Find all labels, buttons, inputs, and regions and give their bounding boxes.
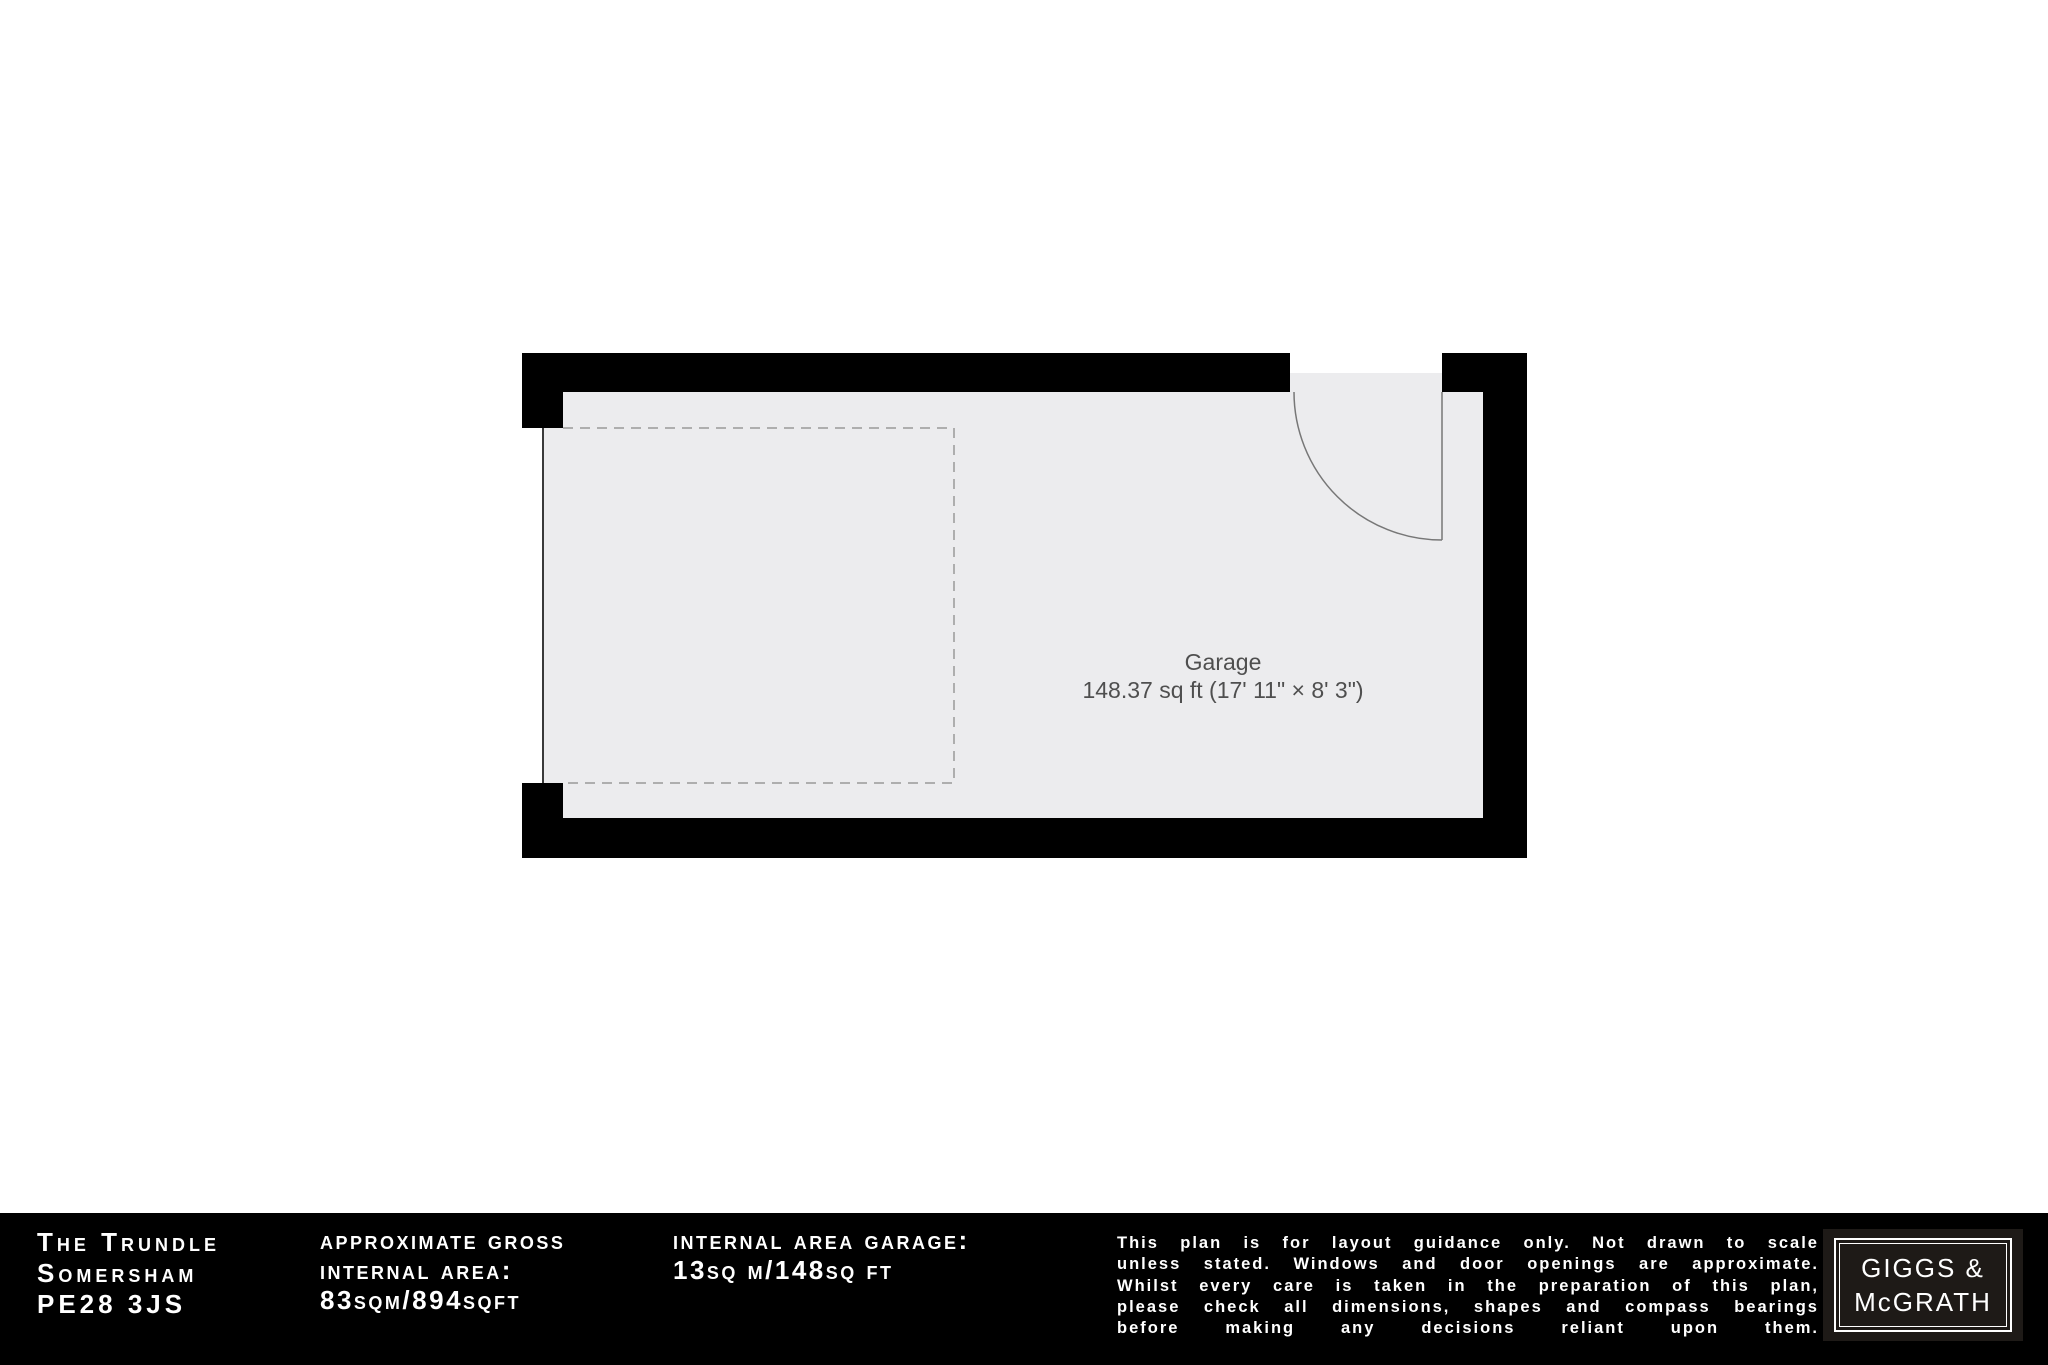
disclaimer-line-4: please check all dimensions, shapes and … [1117, 1297, 1819, 1318]
property-address: The Trundle Somersham PE28 3JS [37, 1227, 220, 1320]
room-label-group: Garage 148.37 sq ft (17' 11" × 8' 3") [973, 648, 1473, 704]
garage-area-line-2: 13sq m/148sq ft [673, 1255, 970, 1285]
entry-door-swing-arc [1294, 392, 1442, 540]
disclaimer-line-1: This plan is for layout guidance only. N… [1117, 1233, 1819, 1254]
garage-internal-area: internal area garage: 13sq m/148sq ft [673, 1225, 970, 1285]
logo-frame-inner: GIGGS & McGRATH [1839, 1243, 2007, 1327]
logo-line-2: McGRATH [1854, 1285, 1992, 1319]
address-line-1: The Trundle [37, 1227, 220, 1258]
agency-logo: GIGGS & McGRATH [1823, 1229, 2023, 1341]
disclaimer-text: This plan is for layout guidance only. N… [1117, 1233, 1819, 1339]
footer-bar: The Trundle Somersham PE28 3JS approxima… [0, 1213, 2048, 1365]
floor-plan: Garage 148.37 sq ft (17' 11" × 8' 3") [522, 353, 1527, 858]
disclaimer-line-5: before making any decisions reliant upon… [1117, 1318, 1819, 1339]
garage-area-line-1: internal area garage: [673, 1225, 970, 1255]
gross-area-line-1: approximate gross [320, 1225, 565, 1255]
gross-area-line-2: internal area: [320, 1255, 565, 1285]
disclaimer-line-2: unless stated. Windows and door openings… [1117, 1254, 1819, 1275]
address-line-3: PE28 3JS [37, 1289, 220, 1320]
page-canvas: Garage 148.37 sq ft (17' 11" × 8' 3") Th… [0, 0, 2048, 1365]
room-name: Garage [973, 648, 1473, 676]
dashed-area-outline [563, 428, 954, 783]
logo-line-1: GIGGS & [1861, 1251, 1985, 1285]
gross-internal-area: approximate gross internal area: 83sqm/8… [320, 1225, 565, 1315]
disclaimer-line-3: Whilst every care is taken in the prepar… [1117, 1276, 1819, 1297]
plan-linework [522, 353, 1527, 858]
logo-frame: GIGGS & McGRATH [1834, 1238, 2012, 1332]
room-area: 148.37 sq ft (17' 11" × 8' 3") [973, 676, 1473, 704]
gross-area-line-3: 83sqm/894sqft [320, 1285, 565, 1315]
address-line-2: Somersham [37, 1258, 220, 1289]
